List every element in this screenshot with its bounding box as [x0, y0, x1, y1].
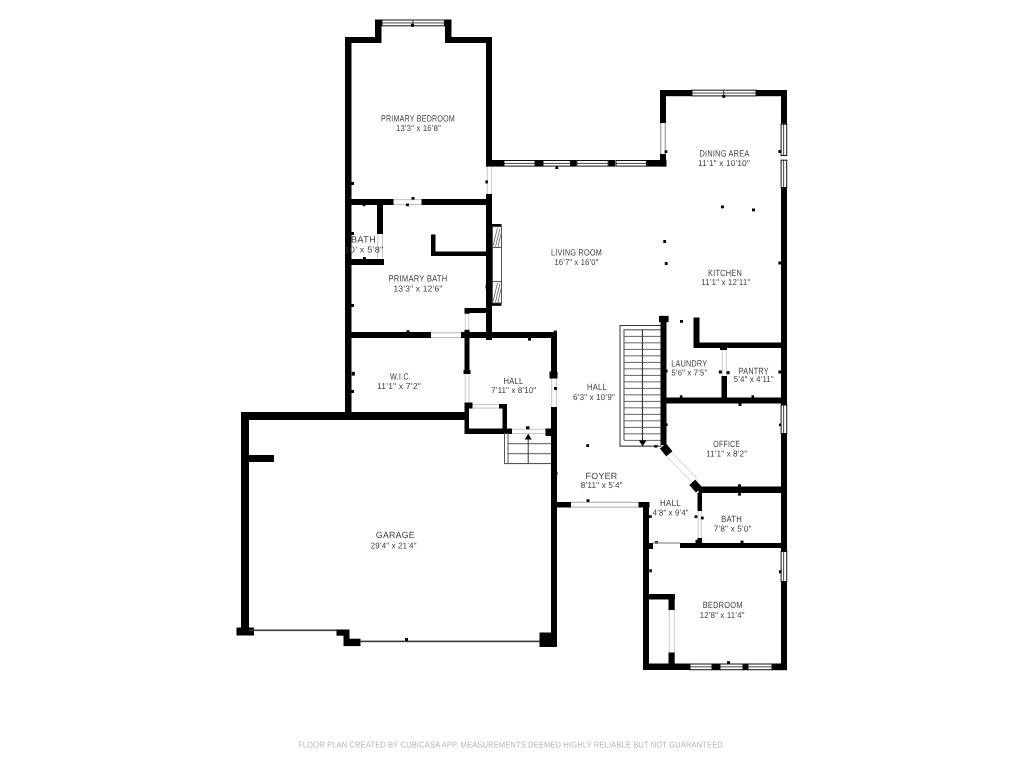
svg-text:PRIMARY BEDROOM: PRIMARY BEDROOM: [381, 114, 455, 124]
svg-text:BATH: BATH: [351, 235, 376, 245]
svg-text:12’8" x 11’4": 12’8" x 11’4": [700, 610, 745, 620]
svg-text:PRIMARY BATH: PRIMARY BATH: [389, 274, 448, 284]
svg-text:8’11" x 5’4": 8’11" x 5’4": [581, 480, 623, 490]
svg-text:11’1" x 12’11": 11’1" x 12’11": [701, 277, 750, 287]
svg-text:W.I.C.: W.I.C.: [390, 371, 411, 381]
svg-text:BATH: BATH: [721, 514, 742, 524]
svg-text:29’4" x 21’4": 29’4" x 21’4": [371, 541, 417, 551]
svg-text:7’8" x 5’0": 7’8" x 5’0": [714, 524, 752, 534]
svg-text:11’1" x 10’10": 11’1" x 10’10": [698, 158, 750, 168]
svg-text:13’3" x 12’6": 13’3" x 12’6": [394, 284, 443, 294]
svg-text:BEDROOM: BEDROOM: [703, 600, 743, 610]
svg-text:6’3" x 10’9": 6’3" x 10’9": [573, 392, 615, 402]
svg-text:DINING AREA: DINING AREA: [700, 149, 750, 159]
svg-text:HALL: HALL: [587, 382, 607, 392]
svg-text:GARAGE: GARAGE: [376, 530, 415, 540]
svg-text:11’1" x 7’2": 11’1" x 7’2": [377, 381, 421, 391]
svg-text:13’3" x 16’8": 13’3" x 16’8": [396, 123, 441, 133]
svg-text:11’1" x 8’2": 11’1" x 8’2": [706, 449, 747, 459]
svg-text:5’4" x 4’11": 5’4" x 4’11": [734, 374, 774, 384]
svg-text:7’11" x 8’10": 7’11" x 8’10": [491, 385, 536, 395]
svg-text:4’8" x 9’4": 4’8" x 9’4": [653, 507, 689, 517]
svg-text:16’7" x 16’0": 16’7" x 16’0": [555, 257, 599, 267]
svg-text:5’6" x 7’5": 5’6" x 7’5": [671, 367, 707, 377]
svg-text:LIVING ROOM: LIVING ROOM: [551, 248, 602, 258]
svg-text:10’ x 5’8": 10’ x 5’8": [345, 245, 384, 255]
svg-text:OFFICE: OFFICE: [713, 439, 740, 449]
svg-text:FLOOR PLAN CREATED BY CUBICASA: FLOOR PLAN CREATED BY CUBICASA APP. MEAS…: [298, 740, 725, 750]
